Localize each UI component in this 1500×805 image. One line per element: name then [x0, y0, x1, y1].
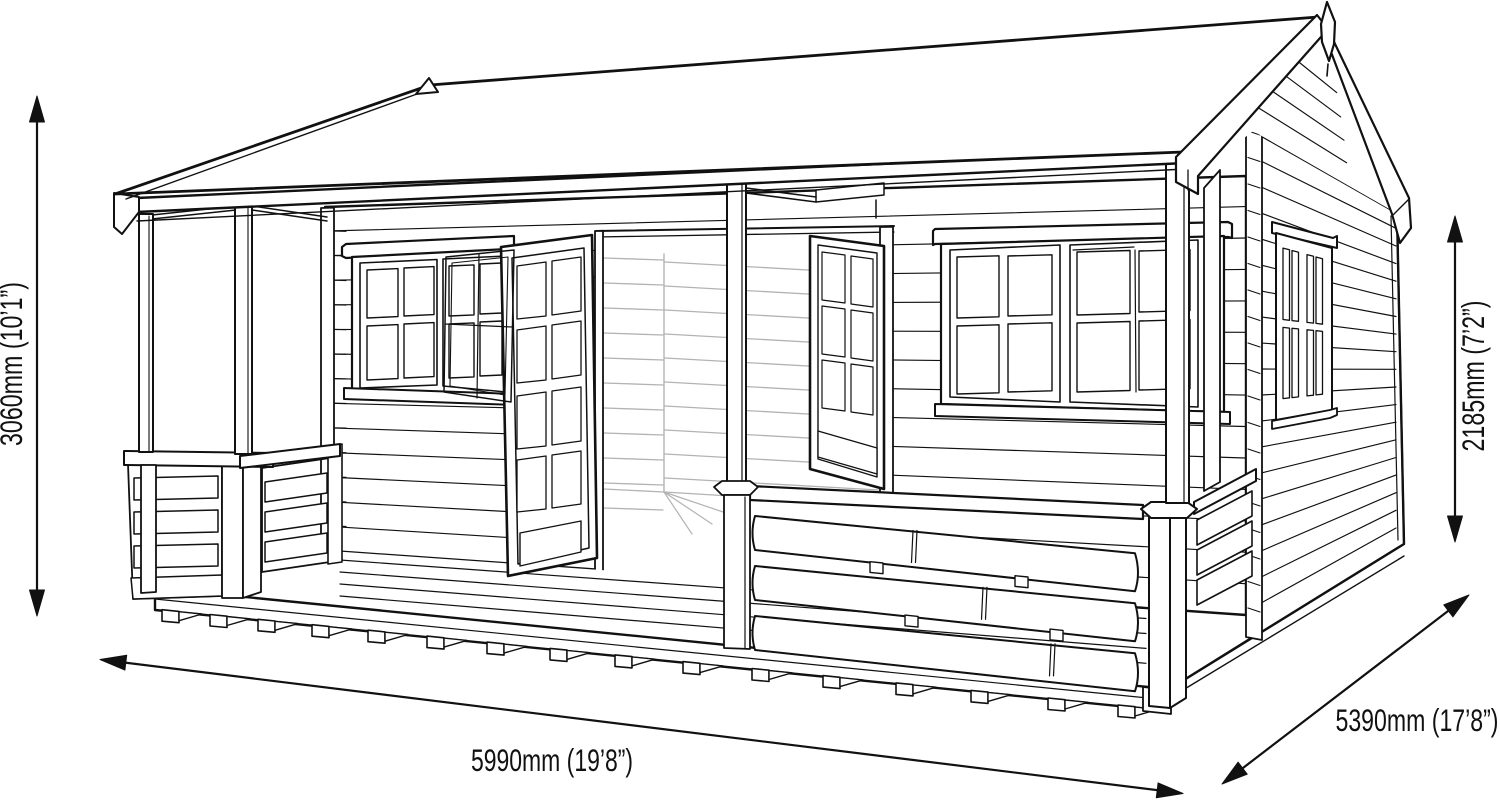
svg-text:2185mm (7’2”): 2185mm (7’2”) [1455, 301, 1491, 452]
svg-text:3060mm (10’1”): 3060mm (10’1”) [0, 282, 29, 446]
svg-text:5990mm (19’8”): 5990mm (19’8”) [471, 742, 633, 778]
svg-text:5390mm (17’8”): 5390mm (17’8”) [1336, 702, 1499, 738]
